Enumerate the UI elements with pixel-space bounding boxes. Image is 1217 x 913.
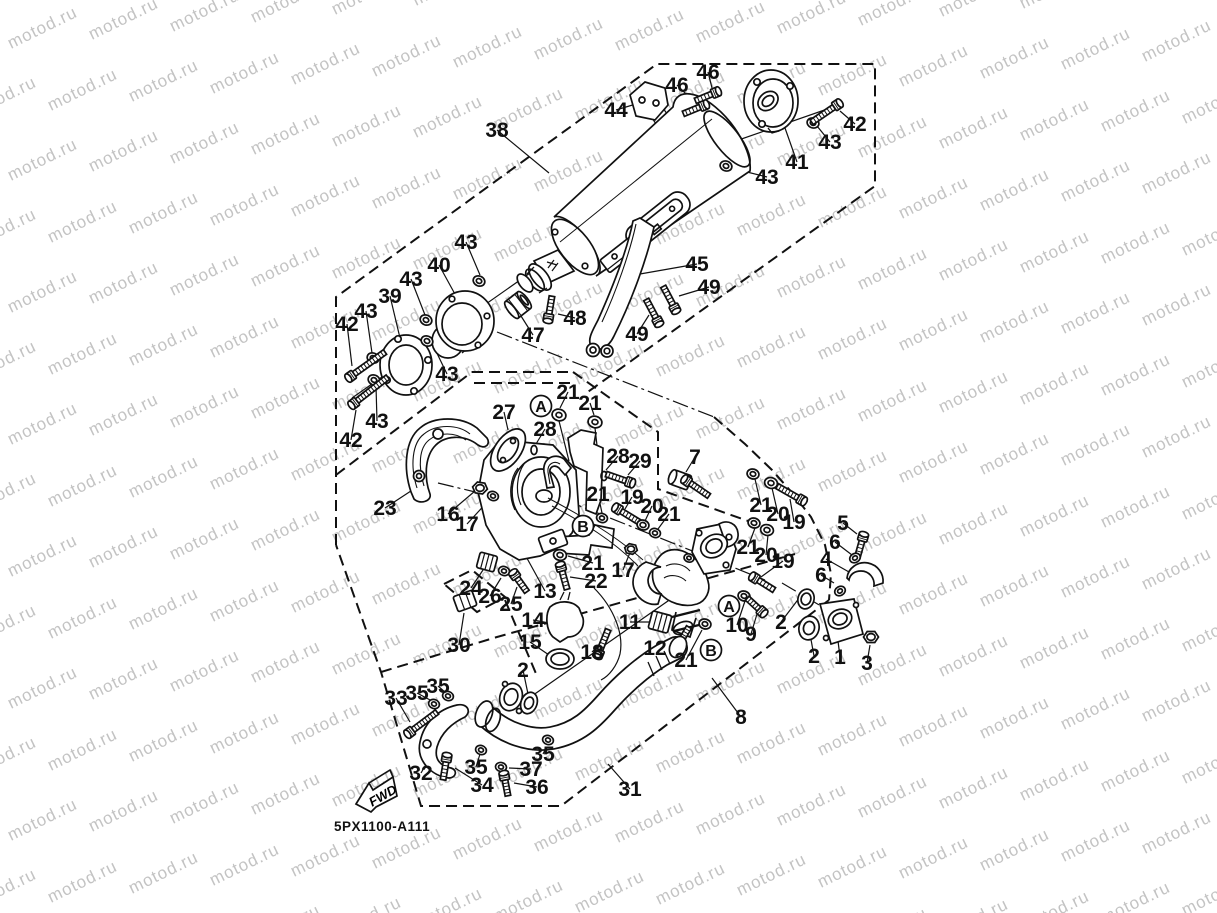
svg-text:7: 7 <box>689 446 701 469</box>
svg-text:31: 31 <box>618 778 642 801</box>
svg-text:B: B <box>705 643 717 660</box>
svg-text:21: 21 <box>674 649 698 672</box>
svg-text:28: 28 <box>533 418 557 441</box>
svg-text:49: 49 <box>697 276 720 299</box>
svg-text:46: 46 <box>665 74 688 97</box>
svg-text:2: 2 <box>517 659 529 682</box>
svg-text:A: A <box>535 399 547 416</box>
svg-text:25: 25 <box>499 593 523 616</box>
svg-text:13: 13 <box>533 580 556 603</box>
svg-text:17: 17 <box>455 513 478 536</box>
svg-text:34: 34 <box>470 774 494 797</box>
svg-text:6: 6 <box>815 564 827 587</box>
svg-text:5PX1100-A111: 5PX1100-A111 <box>334 819 430 834</box>
svg-text:15: 15 <box>518 631 542 654</box>
svg-text:14: 14 <box>521 609 545 632</box>
svg-text:33: 33 <box>384 687 407 710</box>
svg-text:43: 43 <box>755 166 778 189</box>
svg-text:27: 27 <box>492 401 515 424</box>
svg-text:22: 22 <box>584 570 607 593</box>
svg-text:2: 2 <box>808 645 820 668</box>
svg-text:43: 43 <box>818 131 841 154</box>
svg-text:38: 38 <box>485 119 509 142</box>
svg-text:21: 21 <box>586 483 610 506</box>
svg-text:2: 2 <box>775 611 787 634</box>
svg-text:35: 35 <box>426 675 450 698</box>
svg-text:21: 21 <box>556 381 580 404</box>
svg-text:43: 43 <box>435 363 458 386</box>
svg-text:1: 1 <box>834 646 846 669</box>
svg-text:28: 28 <box>606 445 630 468</box>
svg-text:47: 47 <box>521 324 544 347</box>
svg-text:8: 8 <box>735 706 747 729</box>
svg-text:11: 11 <box>619 611 642 634</box>
svg-text:32: 32 <box>409 762 432 785</box>
svg-text:46: 46 <box>696 61 719 84</box>
svg-text:43: 43 <box>365 410 388 433</box>
svg-text:42: 42 <box>843 113 866 136</box>
svg-text:23: 23 <box>373 497 396 520</box>
svg-text:49: 49 <box>625 323 648 346</box>
svg-text:45: 45 <box>685 253 709 276</box>
svg-text:3: 3 <box>861 652 873 675</box>
svg-text:29: 29 <box>628 450 651 473</box>
svg-text:12: 12 <box>643 637 666 660</box>
svg-text:21: 21 <box>657 503 681 526</box>
svg-text:19: 19 <box>782 511 805 534</box>
svg-text:40: 40 <box>427 254 450 277</box>
svg-text:17: 17 <box>611 559 634 582</box>
svg-text:26: 26 <box>478 585 501 608</box>
svg-text:43: 43 <box>454 231 477 254</box>
svg-text:41: 41 <box>785 151 809 174</box>
svg-text:42: 42 <box>335 313 358 336</box>
svg-text:30: 30 <box>447 634 470 657</box>
svg-text:19: 19 <box>771 550 794 573</box>
svg-text:39: 39 <box>378 285 401 308</box>
svg-text:43: 43 <box>399 268 422 291</box>
svg-text:9: 9 <box>745 623 757 646</box>
svg-text:B: B <box>577 519 589 536</box>
svg-text:42: 42 <box>339 429 362 452</box>
svg-text:21: 21 <box>578 392 602 415</box>
svg-text:36: 36 <box>525 776 548 799</box>
svg-text:A: A <box>723 599 735 616</box>
svg-text:44: 44 <box>604 99 628 122</box>
svg-text:18: 18 <box>580 641 604 664</box>
svg-text:48: 48 <box>563 307 587 330</box>
